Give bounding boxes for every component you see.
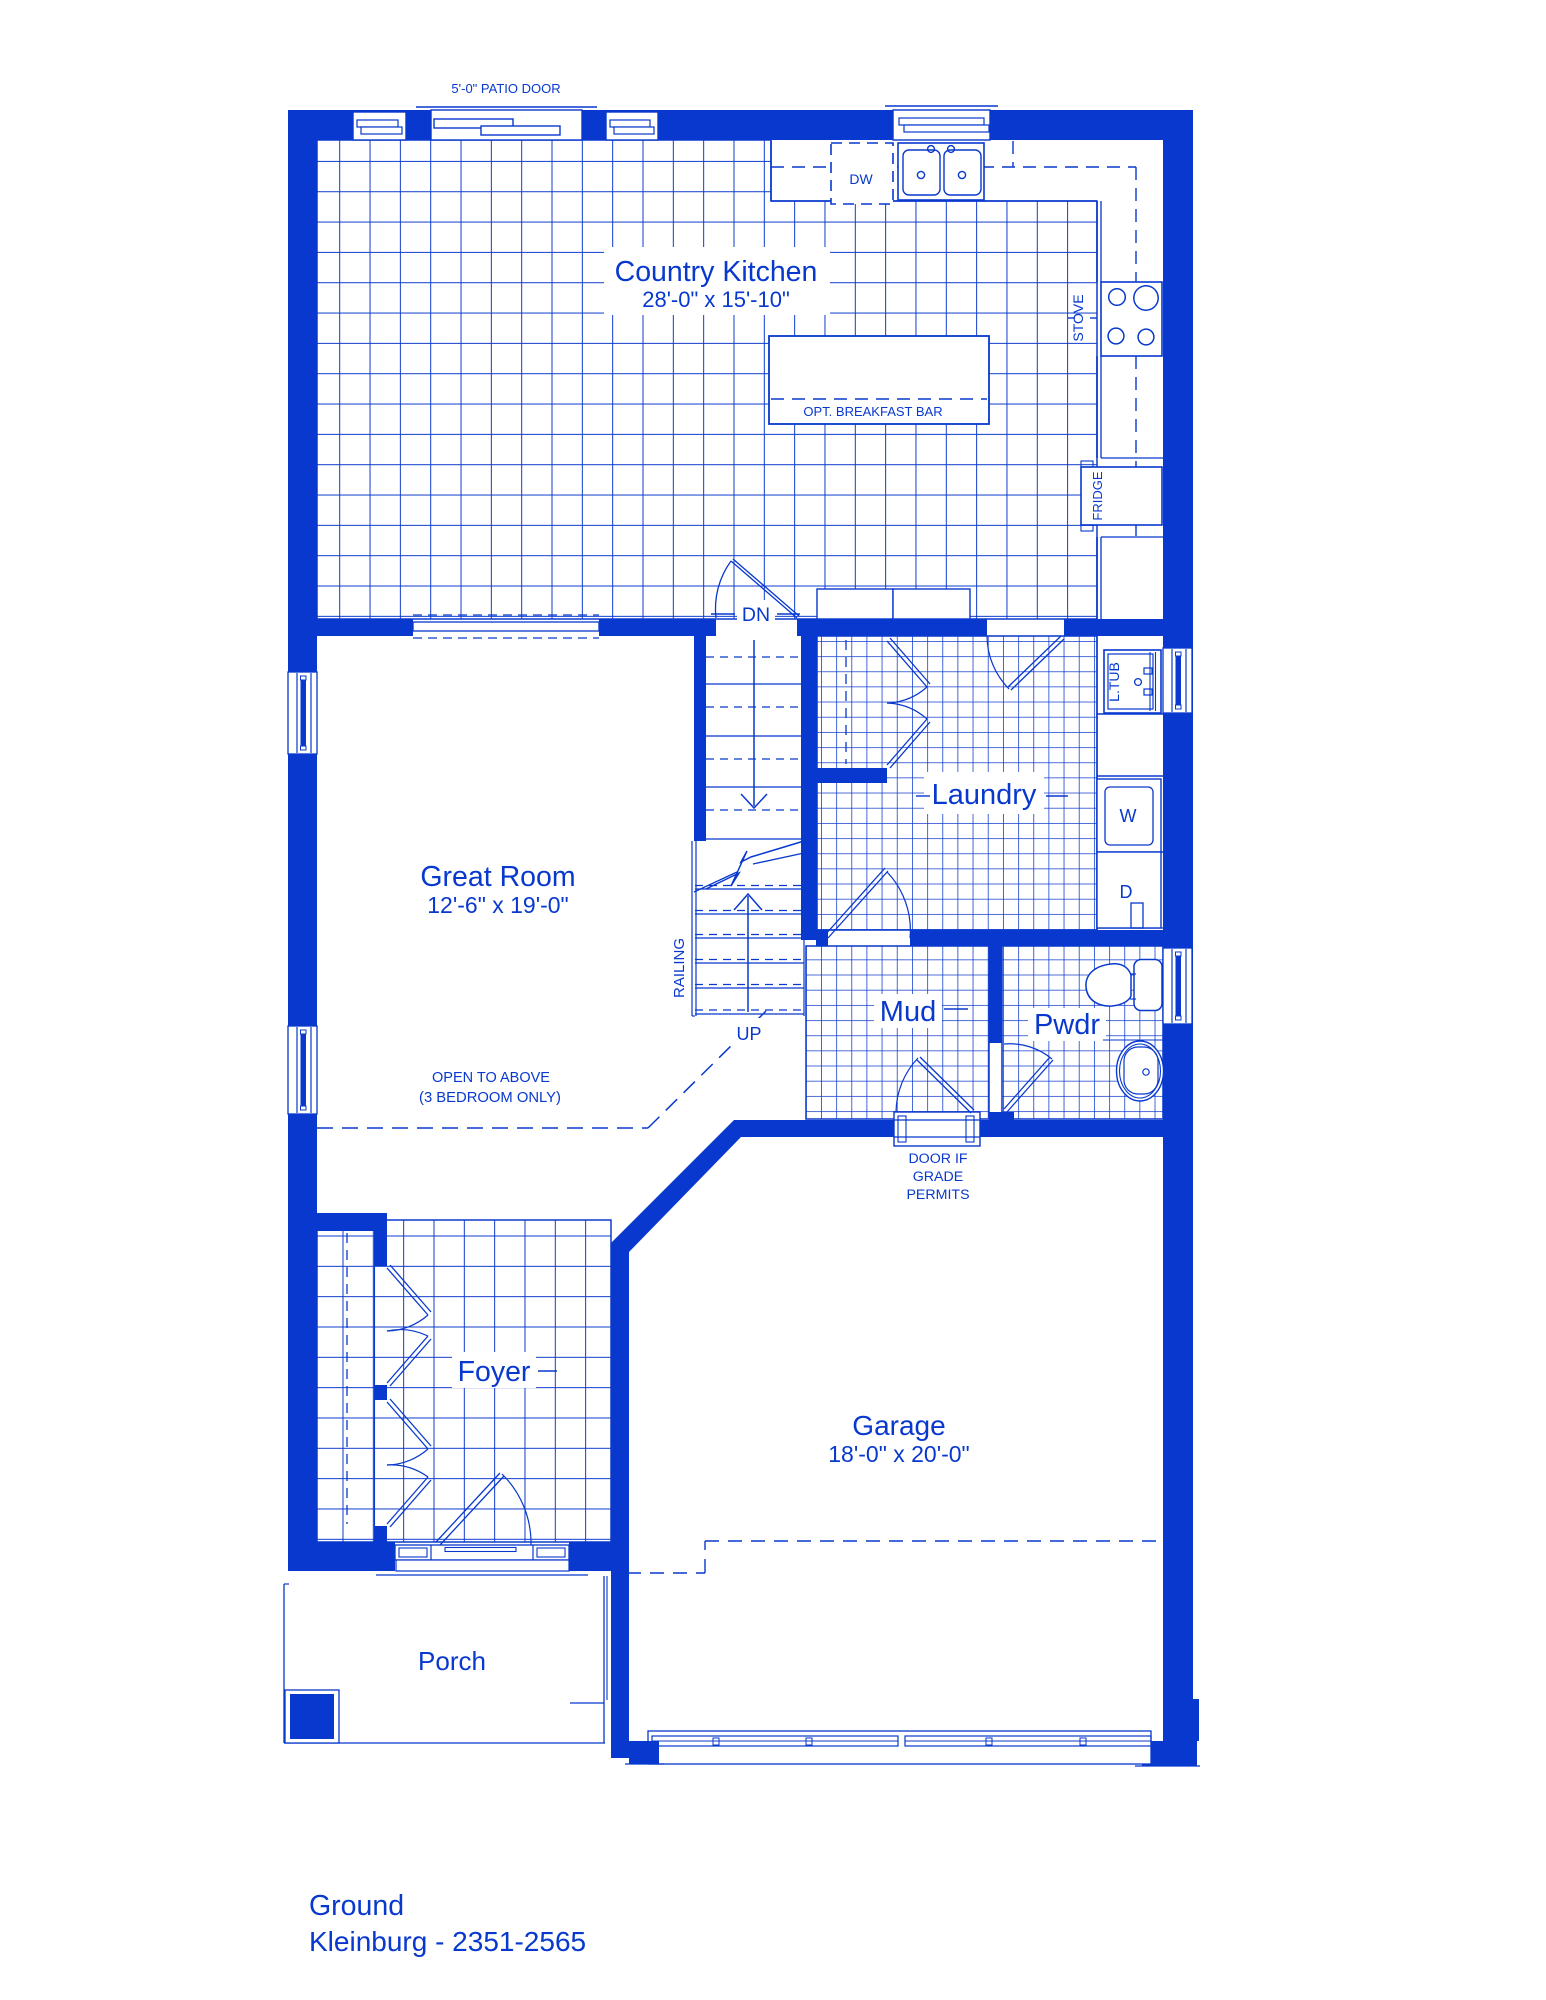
svg-text:Great Room: Great Room xyxy=(420,861,575,893)
svg-text:12'-6" x 19'-0": 12'-6" x 19'-0" xyxy=(427,892,568,918)
svg-text:FRIDGE: FRIDGE xyxy=(1090,471,1105,520)
svg-text:L.TUB: L.TUB xyxy=(1106,662,1122,702)
svg-text:Country Kitchen: Country Kitchen xyxy=(615,256,818,288)
svg-text:Laundry: Laundry xyxy=(932,779,1037,811)
svg-text:OPEN TO ABOVE: OPEN TO ABOVE xyxy=(432,1070,550,1086)
svg-text:GRADE: GRADE xyxy=(913,1169,963,1185)
svg-text:UP: UP xyxy=(736,1024,761,1044)
svg-text:Mud: Mud xyxy=(880,996,936,1028)
svg-text:Foyer: Foyer xyxy=(458,1356,531,1388)
svg-text:W: W xyxy=(1120,806,1137,826)
svg-text:D: D xyxy=(1120,882,1133,902)
svg-text:Ground: Ground xyxy=(309,1890,404,1922)
svg-text:DW: DW xyxy=(849,171,873,187)
svg-text:Porch: Porch xyxy=(418,1646,486,1676)
svg-text:RAILING: RAILING xyxy=(671,938,688,998)
svg-text:(3 BEDROOM ONLY): (3 BEDROOM ONLY) xyxy=(419,1090,561,1106)
svg-text:5'-0" PATIO DOOR: 5'-0" PATIO DOOR xyxy=(451,81,560,96)
svg-text:DOOR IF: DOOR IF xyxy=(908,1151,967,1167)
svg-text:Pwdr: Pwdr xyxy=(1034,1009,1100,1041)
svg-text:DN: DN xyxy=(742,604,770,626)
svg-text:OPT. BREAKFAST BAR: OPT. BREAKFAST BAR xyxy=(803,404,942,419)
svg-text:28'-0" x 15'-10": 28'-0" x 15'-10" xyxy=(642,287,790,312)
svg-text:PERMITS: PERMITS xyxy=(906,1187,969,1203)
svg-text:Garage: Garage xyxy=(852,1410,945,1441)
svg-text:STOVE: STOVE xyxy=(1070,294,1086,341)
svg-text:Kleinburg - 2351-2565: Kleinburg - 2351-2565 xyxy=(309,1926,586,1957)
svg-text:18'-0" x 20'-0": 18'-0" x 20'-0" xyxy=(828,1441,969,1467)
